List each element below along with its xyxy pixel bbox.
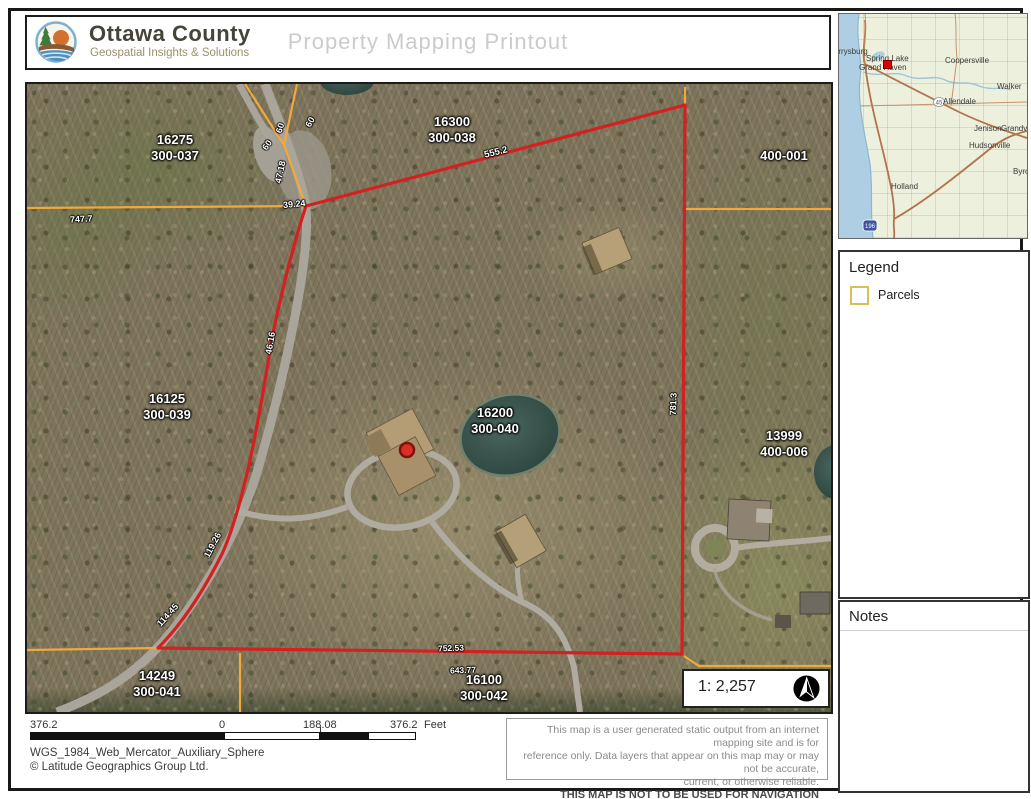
neighbor-house [727, 499, 773, 541]
disclaimer-warning: THIS MAP IS NOT TO BE USED FOR NAVIGATIO… [515, 789, 819, 799]
subject-marker [400, 443, 414, 457]
dim-label: 781.3 [668, 393, 679, 416]
inset-city: Ferrysburg [838, 47, 868, 56]
scalebar-sub-segment [319, 733, 369, 739]
shed [775, 615, 791, 628]
subject-boundary [158, 105, 685, 654]
scalebar-label-right: 376.2 [390, 719, 418, 731]
map-canvas: 16275300-037 16300300-038 400-001 161253… [25, 82, 833, 714]
scalebar-left-segment [30, 732, 224, 740]
inset-city: Byron Center [1013, 167, 1028, 176]
north-arrow-icon [792, 674, 821, 703]
parcel-label: 14249300-041 [112, 668, 202, 699]
driveway-entry [235, 507, 347, 519]
parcel-label: 13999400-006 [739, 428, 829, 459]
page-title: Property Mapping Printout [27, 29, 829, 55]
disclaimer-line: This map is a user generated static outp… [515, 724, 819, 750]
neighbor-path [714, 568, 772, 620]
dim-label: 752.53 [438, 643, 464, 654]
drive-island [706, 539, 724, 557]
parcel-label: 400-001 [739, 148, 829, 164]
scale-ratio: 1: 2,257 [698, 678, 756, 696]
disclaimer-box: This map is a user generated static outp… [506, 718, 828, 780]
inset-city: Holland [891, 182, 918, 191]
inset-city: Allendale [943, 97, 976, 106]
notes-panel: Notes [838, 600, 1030, 793]
parcels-swatch-icon [850, 286, 869, 305]
scalebar-unit: Feet [424, 719, 446, 731]
scalebar-label-zero: 0 [219, 719, 225, 731]
legend-item-label: Parcels [878, 288, 920, 302]
parcel-label: 16100300-042 [439, 672, 529, 703]
notes-title: Notes [849, 608, 888, 625]
disclaimer-line: reference only. Data layers that appear … [515, 750, 819, 776]
projection-text: WGS_1984_Web_Mercator_Auxiliary_Sphere [30, 747, 264, 759]
header-bar: Ottawa County Geospatial Insights & Solu… [25, 15, 831, 70]
disclaimer-line: current, or otherwise reliable. [515, 776, 819, 789]
second-house [493, 514, 546, 567]
parcel-label: 16300300-038 [407, 114, 497, 145]
copyright-text: © Latitude Geographics Group Ltd. [30, 761, 209, 773]
scalebar-right-segment [224, 732, 416, 740]
inset-city: Hudsonville [969, 141, 1010, 150]
m45-shield-label: 45 [936, 101, 943, 107]
inset-city: Jenison [974, 124, 1002, 133]
parcel-label: 16125300-039 [122, 391, 212, 422]
parcel-label: 16200300-040 [450, 405, 540, 436]
inset-city: Grandville [1001, 124, 1028, 133]
parcel-label: 16275300-037 [130, 132, 220, 163]
notes-divider [840, 630, 1028, 631]
barn [582, 228, 632, 276]
scale-indicator: 1: 2,257 [682, 669, 830, 708]
dim-label: 747.7 [70, 213, 93, 224]
inset-city: Coopersville [945, 56, 989, 65]
print-page: Ottawa County Geospatial Insights & Solu… [0, 0, 1031, 799]
far-house [800, 592, 830, 614]
legend-title: Legend [849, 259, 899, 276]
dim-label: 643.77 [450, 665, 476, 676]
inset-location-marker [883, 60, 892, 69]
legend-panel: Legend Parcels [838, 250, 1030, 599]
i196-shield-label: 196 [865, 224, 876, 230]
inset-city: Walker [997, 82, 1022, 91]
overview-inset-map: 45 196 Ferrysburg Spring Lake Grand Have… [838, 13, 1028, 239]
scalebar-label-left: 376.2 [30, 719, 58, 731]
top-pond [320, 84, 374, 95]
